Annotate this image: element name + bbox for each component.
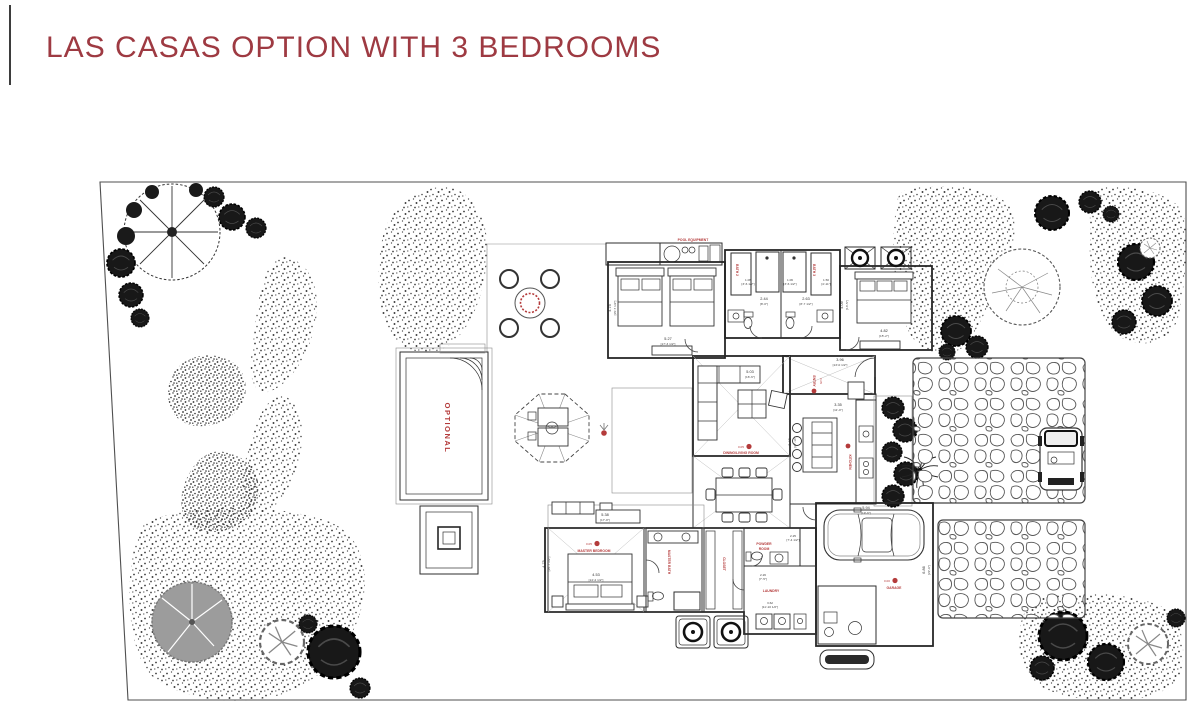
chair-icon bbox=[541, 270, 559, 288]
dim-bedroom3-d: 4.09 bbox=[840, 301, 844, 308]
shrub-icon bbox=[882, 442, 902, 462]
tree-icon bbox=[1039, 612, 1087, 660]
patio-dining-set bbox=[500, 270, 559, 337]
level-dot bbox=[594, 541, 599, 546]
dim-master-w: 5.38 bbox=[601, 513, 608, 517]
living-room bbox=[693, 356, 790, 456]
stool-icon bbox=[793, 450, 802, 459]
pool-steps bbox=[450, 358, 482, 390]
dim-master-d: 4.75 bbox=[542, 560, 546, 567]
fridge-icon bbox=[848, 382, 864, 399]
dim-kitchen-w-ft: [11'-0"] bbox=[833, 408, 843, 412]
tree-icon bbox=[119, 283, 143, 307]
tree-icon bbox=[1030, 656, 1054, 680]
master-suite: 0.05 MASTER BEDROOM MASTER BATH bbox=[545, 502, 816, 634]
dim-garage-w: 5.94 bbox=[862, 506, 869, 510]
toilet-icon bbox=[746, 552, 763, 561]
driveway-cobble bbox=[913, 358, 1085, 618]
tree-icon bbox=[1167, 609, 1185, 627]
dim-living-w: 5.03 bbox=[746, 370, 753, 374]
shrub-icon bbox=[882, 397, 904, 419]
site-plan-svg: OPTIONAL bbox=[0, 0, 1200, 719]
round-tree-icon bbox=[984, 249, 1060, 325]
chair-icon bbox=[541, 319, 559, 337]
dim-bedroom2-w-ft: [17'-3 1/2"] bbox=[661, 342, 676, 346]
pool-equipment-room: POOL EQUIPMENT bbox=[606, 238, 722, 265]
sink-icon bbox=[728, 310, 744, 322]
label-kitchen: KITCHEN bbox=[848, 454, 852, 470]
dim-garage-d-ft: [22'-6"] bbox=[927, 565, 931, 575]
label-pool-equipment: POOL EQUIPMENT bbox=[678, 238, 710, 242]
bottle-icon bbox=[682, 247, 688, 253]
garage-door-icon bbox=[820, 650, 874, 669]
label-powder-1: POWDER bbox=[756, 542, 772, 546]
dim-bedroom3-w: 4.82 bbox=[880, 329, 887, 333]
tree-icon bbox=[1088, 644, 1124, 680]
dining-level: 0.05 bbox=[738, 445, 744, 449]
tree-icon bbox=[299, 615, 317, 633]
palapa-gazebo bbox=[515, 394, 608, 462]
shower-icon bbox=[674, 592, 700, 610]
dim-bedroom2-d-ft: [15'-7 1/2"] bbox=[613, 300, 617, 315]
label-laundry: LAUNDRY bbox=[763, 589, 780, 593]
sink-icon bbox=[859, 426, 873, 442]
dim-entry-w: 3.96 bbox=[836, 358, 843, 362]
label-bath2: BATH 2 bbox=[735, 264, 739, 276]
dim-entry-w-ft: [13'-0 1/2"] bbox=[833, 363, 848, 367]
dryer-icon bbox=[774, 614, 790, 629]
pool-optional: OPTIONAL bbox=[396, 344, 492, 574]
dim-powder-w-ft: [7'-4 1/2"] bbox=[786, 538, 799, 542]
ac-unit-icon bbox=[676, 616, 710, 648]
golf-cart-icon bbox=[1038, 428, 1084, 490]
chair-icon bbox=[500, 319, 518, 337]
stool-icon bbox=[793, 424, 802, 433]
garage: 0.00 GARAGE bbox=[803, 503, 933, 669]
tree-icon bbox=[219, 204, 245, 230]
tree-icon bbox=[246, 218, 266, 238]
tree-icon bbox=[966, 336, 988, 358]
table-icon bbox=[515, 288, 545, 318]
bed-icon bbox=[616, 268, 664, 326]
kitchen: KITCHEN bbox=[790, 382, 876, 504]
equipment-icon bbox=[710, 245, 720, 262]
gray-tree-icon bbox=[152, 582, 232, 662]
tree-icon bbox=[1142, 286, 1172, 316]
car-icon bbox=[824, 508, 924, 562]
label-closet: CLOSET bbox=[722, 557, 726, 572]
tank-icon bbox=[849, 622, 862, 635]
label-garage: GARAGE bbox=[887, 586, 903, 590]
toilet-icon bbox=[648, 592, 664, 601]
dim-living-d: 8.48 bbox=[788, 438, 792, 445]
dim-shower-w-ft: [3'-6 1/2"] bbox=[741, 282, 754, 286]
label-entry: ENTRY bbox=[812, 375, 816, 387]
tree-icon bbox=[1140, 238, 1160, 258]
dim-closet2-w-ft: [4'-11"] bbox=[821, 282, 831, 286]
tree-icon bbox=[1112, 310, 1136, 334]
closet: CLOSET bbox=[704, 528, 744, 612]
dim-master-d-ft: [15'-7 1/2"] bbox=[547, 556, 551, 571]
master-bedroom: 0.05 MASTER BEDROOM bbox=[548, 528, 648, 612]
tree-icon bbox=[308, 626, 360, 678]
chair-icon bbox=[500, 270, 518, 288]
tree-icon bbox=[350, 678, 370, 698]
coffee-table-icon bbox=[738, 390, 766, 418]
label-dining-living: DINING/LIVING ROOM bbox=[723, 451, 759, 455]
floor-plan-page: LAS CASAS OPTION WITH 3 BEDROOMS bbox=[0, 0, 1200, 719]
spa-pad bbox=[420, 506, 478, 574]
master-level: 0.05 bbox=[586, 542, 592, 546]
toilet-icon bbox=[786, 312, 795, 329]
dim-garage-d: 6.86 bbox=[922, 566, 926, 573]
label-bath3: BATH 3 bbox=[812, 264, 816, 276]
sink-icon bbox=[775, 554, 783, 562]
vanity-icon bbox=[648, 531, 698, 543]
ac-unit-icon bbox=[714, 616, 748, 648]
tree-icon bbox=[1128, 624, 1168, 664]
entry-level: 0.05 bbox=[819, 378, 823, 384]
equipment-icon bbox=[824, 612, 837, 623]
bed-icon bbox=[566, 554, 634, 610]
bed-icon bbox=[855, 272, 913, 323]
ac-units bbox=[676, 616, 748, 648]
dim-living-w-ft: [16'-6"] bbox=[745, 375, 755, 379]
dim-bath3-w-ft: [8'-7 1/2"] bbox=[799, 302, 812, 306]
master-bath: MASTER BATH bbox=[646, 528, 702, 612]
dim-master-bed: 4.53 bbox=[592, 573, 599, 577]
tree-icon bbox=[1079, 191, 1101, 213]
terrace bbox=[548, 502, 704, 528]
tree-icon bbox=[204, 187, 224, 207]
tank-icon bbox=[664, 246, 680, 262]
tree-icon bbox=[1103, 206, 1119, 222]
dim-shower-w2-ft: [3'-6 1/2"] bbox=[783, 282, 796, 286]
storage-room bbox=[818, 586, 876, 644]
dim-bedroom3-w-ft: [15'-2"] bbox=[879, 334, 889, 338]
dim-garage-w-ft: [19'-6"] bbox=[861, 511, 871, 515]
bed-icon bbox=[668, 268, 716, 326]
dim-laundry-l-ft: [11'-10 1/2"] bbox=[762, 605, 778, 609]
tree-icon bbox=[1035, 196, 1069, 230]
bottle-icon bbox=[689, 247, 695, 253]
garage-level: 0.00 bbox=[884, 579, 890, 583]
wood-deck bbox=[612, 388, 692, 493]
level-dot bbox=[812, 389, 817, 394]
roof-unit-icon bbox=[845, 247, 875, 269]
level-dot bbox=[892, 578, 897, 583]
dim-bedroom3-d-ft: [13'-5"] bbox=[845, 300, 849, 310]
label-optional: OPTIONAL bbox=[443, 403, 452, 454]
tree-icon bbox=[941, 316, 971, 346]
tree-icon bbox=[107, 249, 135, 277]
level-dot bbox=[846, 444, 851, 449]
dim-master-bed-ft: [14'-2 1/2"] bbox=[589, 578, 604, 582]
armchair-icon bbox=[769, 390, 788, 408]
cooktop-icon bbox=[859, 458, 873, 478]
sink-icon bbox=[817, 310, 833, 322]
dim-master-w-ft: [17'-8"] bbox=[600, 518, 610, 522]
label-powder-2: ROOM bbox=[759, 547, 770, 551]
dim-laundry-w-ft: [7'-5"] bbox=[759, 577, 767, 581]
dresser-icon bbox=[652, 346, 692, 355]
closet-shelves bbox=[733, 531, 742, 609]
dim-bedroom2-d: 4.75 bbox=[608, 304, 612, 311]
tank-icon bbox=[825, 628, 834, 637]
dim-bath2-w-ft: [8'-0"] bbox=[760, 302, 768, 306]
dim-bath2-w: 2.44 bbox=[760, 297, 767, 301]
nightstand-icon bbox=[552, 596, 563, 607]
bench-icon bbox=[552, 502, 594, 514]
dresser-icon bbox=[860, 341, 900, 349]
tree-icon bbox=[260, 620, 304, 664]
sink-icon bbox=[794, 614, 806, 629]
dim-living-d-ft: [27'-10"] bbox=[793, 436, 797, 447]
label-master-bedroom: MASTER BEDROOM bbox=[578, 549, 611, 553]
plant-marker-icon bbox=[600, 423, 608, 436]
closet-shelves bbox=[706, 531, 715, 609]
level-dot bbox=[746, 444, 751, 449]
equipment-icon bbox=[699, 246, 708, 261]
dim-kitchen-w: 3.35 bbox=[834, 403, 841, 407]
washer-icon bbox=[756, 614, 772, 629]
dim-bath3-w: 2.63 bbox=[802, 297, 809, 301]
bathrooms-block: BATH 2 BATH 3 bbox=[725, 250, 840, 338]
label-entry-group: 0.05 ENTRY bbox=[812, 375, 823, 387]
kitchen-island-icon bbox=[803, 418, 837, 472]
laundry: LAUNDRY bbox=[733, 566, 816, 634]
dim-bedroom2-w: 5.27 bbox=[664, 337, 671, 341]
label-master-bath: MASTER BATH bbox=[667, 550, 671, 575]
tree-icon bbox=[131, 309, 149, 327]
kitchen-counter bbox=[848, 382, 876, 504]
closet-shelves bbox=[731, 253, 751, 295]
stool-icon bbox=[793, 463, 802, 472]
toilet-icon bbox=[744, 312, 753, 329]
